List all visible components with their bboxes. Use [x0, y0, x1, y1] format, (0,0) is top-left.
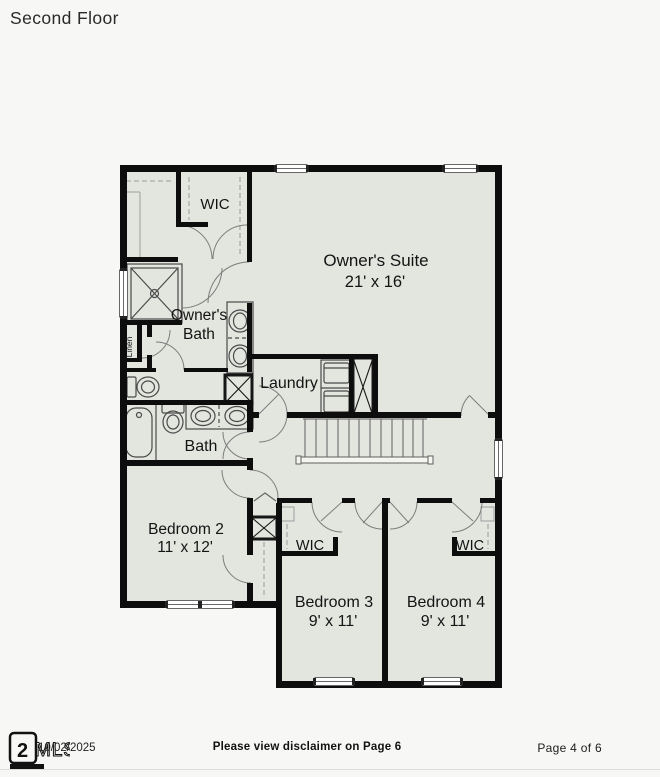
- window-right: [495, 438, 503, 480]
- window-bedroom3: [313, 678, 355, 686]
- label-bedroom2-dims: 11' x 12': [157, 539, 213, 556]
- footer-page-indicator: Page 4 of 6: [537, 741, 602, 755]
- window-bedroom4: [421, 678, 463, 686]
- footer-divider: [0, 769, 660, 770]
- footer-disclaimer: Please view disclaimer on Page 6: [147, 741, 467, 753]
- label-owners-suite: Owner's Suite: [323, 251, 428, 270]
- label-owners-bath-2: Bath: [183, 326, 215, 343]
- label-bath: Bath: [185, 438, 218, 455]
- window-top-1: [274, 165, 309, 173]
- label-owners-bath-1: Owner's: [171, 307, 228, 324]
- label-wic-upper: WIC: [200, 196, 229, 213]
- floor-plan: WIC Owner's Suite 21' x 16' Owner's Bath…: [0, 0, 660, 777]
- label-wic-bedroom4: WIC: [456, 538, 484, 554]
- label-bedroom4-dims: 9' x 11': [421, 613, 470, 630]
- label-bedroom3-dims: 9' x 11': [309, 613, 358, 630]
- label-bedroom3: Bedroom 3: [295, 594, 373, 611]
- window-bedroom2: [165, 601, 235, 609]
- label-owners-suite-dims: 21' x 16': [345, 273, 405, 291]
- label-bedroom4: Bedroom 4: [407, 594, 485, 611]
- label-laundry: Laundry: [260, 375, 318, 392]
- label-wic-bedroom3: WIC: [296, 538, 324, 554]
- window-left: [120, 268, 128, 319]
- label-linen: Linen: [124, 336, 134, 357]
- label-bedroom2: Bedroom 2: [148, 521, 224, 538]
- mls-logo-numeral: 2: [17, 740, 28, 762]
- footer-date: 10/02/2025: [38, 742, 96, 754]
- window-top-2: [442, 165, 479, 173]
